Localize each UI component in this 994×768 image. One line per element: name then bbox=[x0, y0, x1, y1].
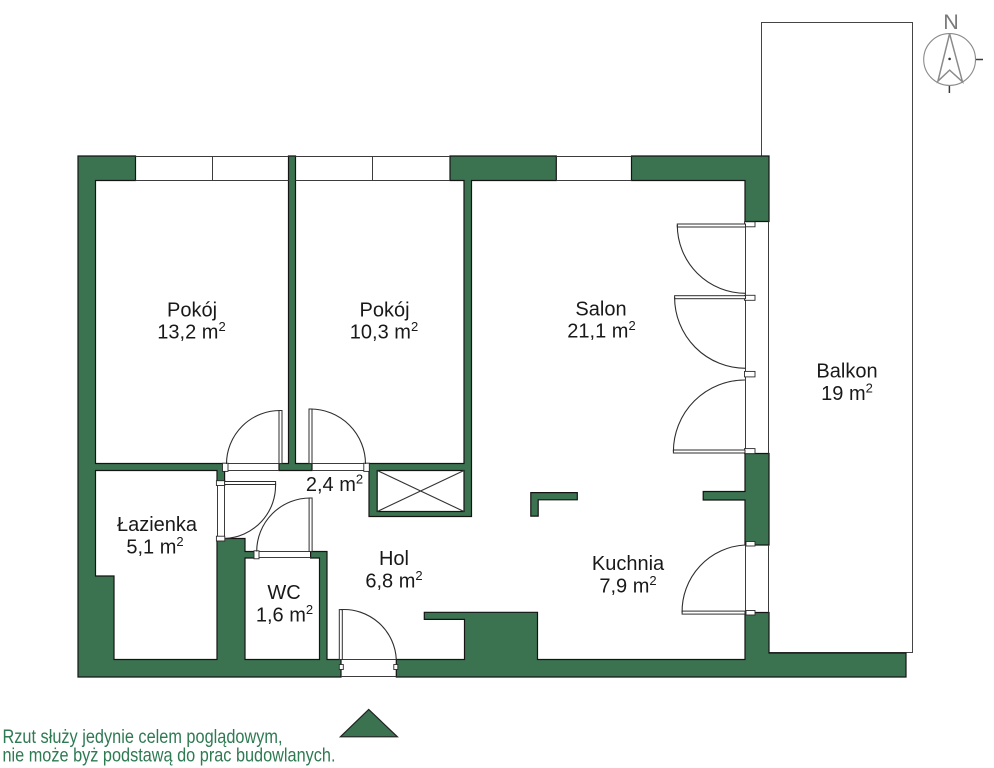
svg-text:Hol: Hol bbox=[379, 548, 409, 570]
svg-text:2,4 m2: 2,4 m2 bbox=[306, 472, 363, 497]
svg-text:Balkon: Balkon bbox=[816, 361, 877, 383]
svg-text:10,3 m2: 10,3 m2 bbox=[350, 319, 418, 344]
svg-text:6,8 m2: 6,8 m2 bbox=[365, 568, 422, 593]
svg-text:7,9 m2: 7,9 m2 bbox=[599, 573, 656, 598]
svg-text:1,6 m2: 1,6 m2 bbox=[256, 602, 313, 627]
svg-text:Salon: Salon bbox=[575, 299, 626, 321]
svg-text:Pokój: Pokój bbox=[359, 300, 409, 322]
svg-text:13,2 m2: 13,2 m2 bbox=[157, 319, 225, 344]
svg-text:19 m2: 19 m2 bbox=[821, 381, 873, 406]
svg-text:N: N bbox=[943, 10, 959, 34]
svg-text:nie może byż podstawą do prac: nie może byż podstawą do prac budowlanyc… bbox=[3, 745, 336, 767]
svg-text:21,1 m2: 21,1 m2 bbox=[567, 318, 635, 343]
svg-text:Łazienka: Łazienka bbox=[117, 514, 198, 536]
svg-text:5,1 m2: 5,1 m2 bbox=[126, 534, 183, 559]
svg-text:Kuchnia: Kuchnia bbox=[592, 553, 665, 575]
svg-text:WC: WC bbox=[267, 582, 300, 604]
svg-text:Pokój: Pokój bbox=[167, 300, 217, 322]
